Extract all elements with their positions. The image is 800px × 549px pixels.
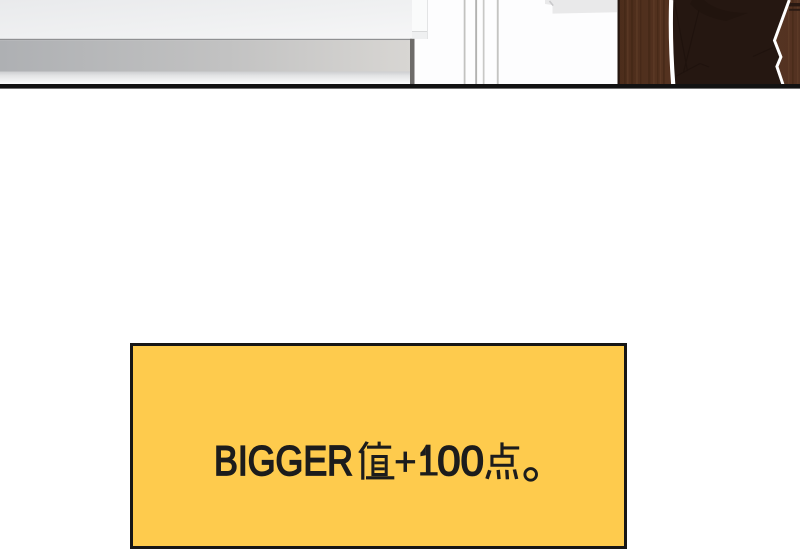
- svg-text:BIGGER: BIGGER: [214, 437, 353, 484]
- svg-text:00: 00: [437, 437, 484, 484]
